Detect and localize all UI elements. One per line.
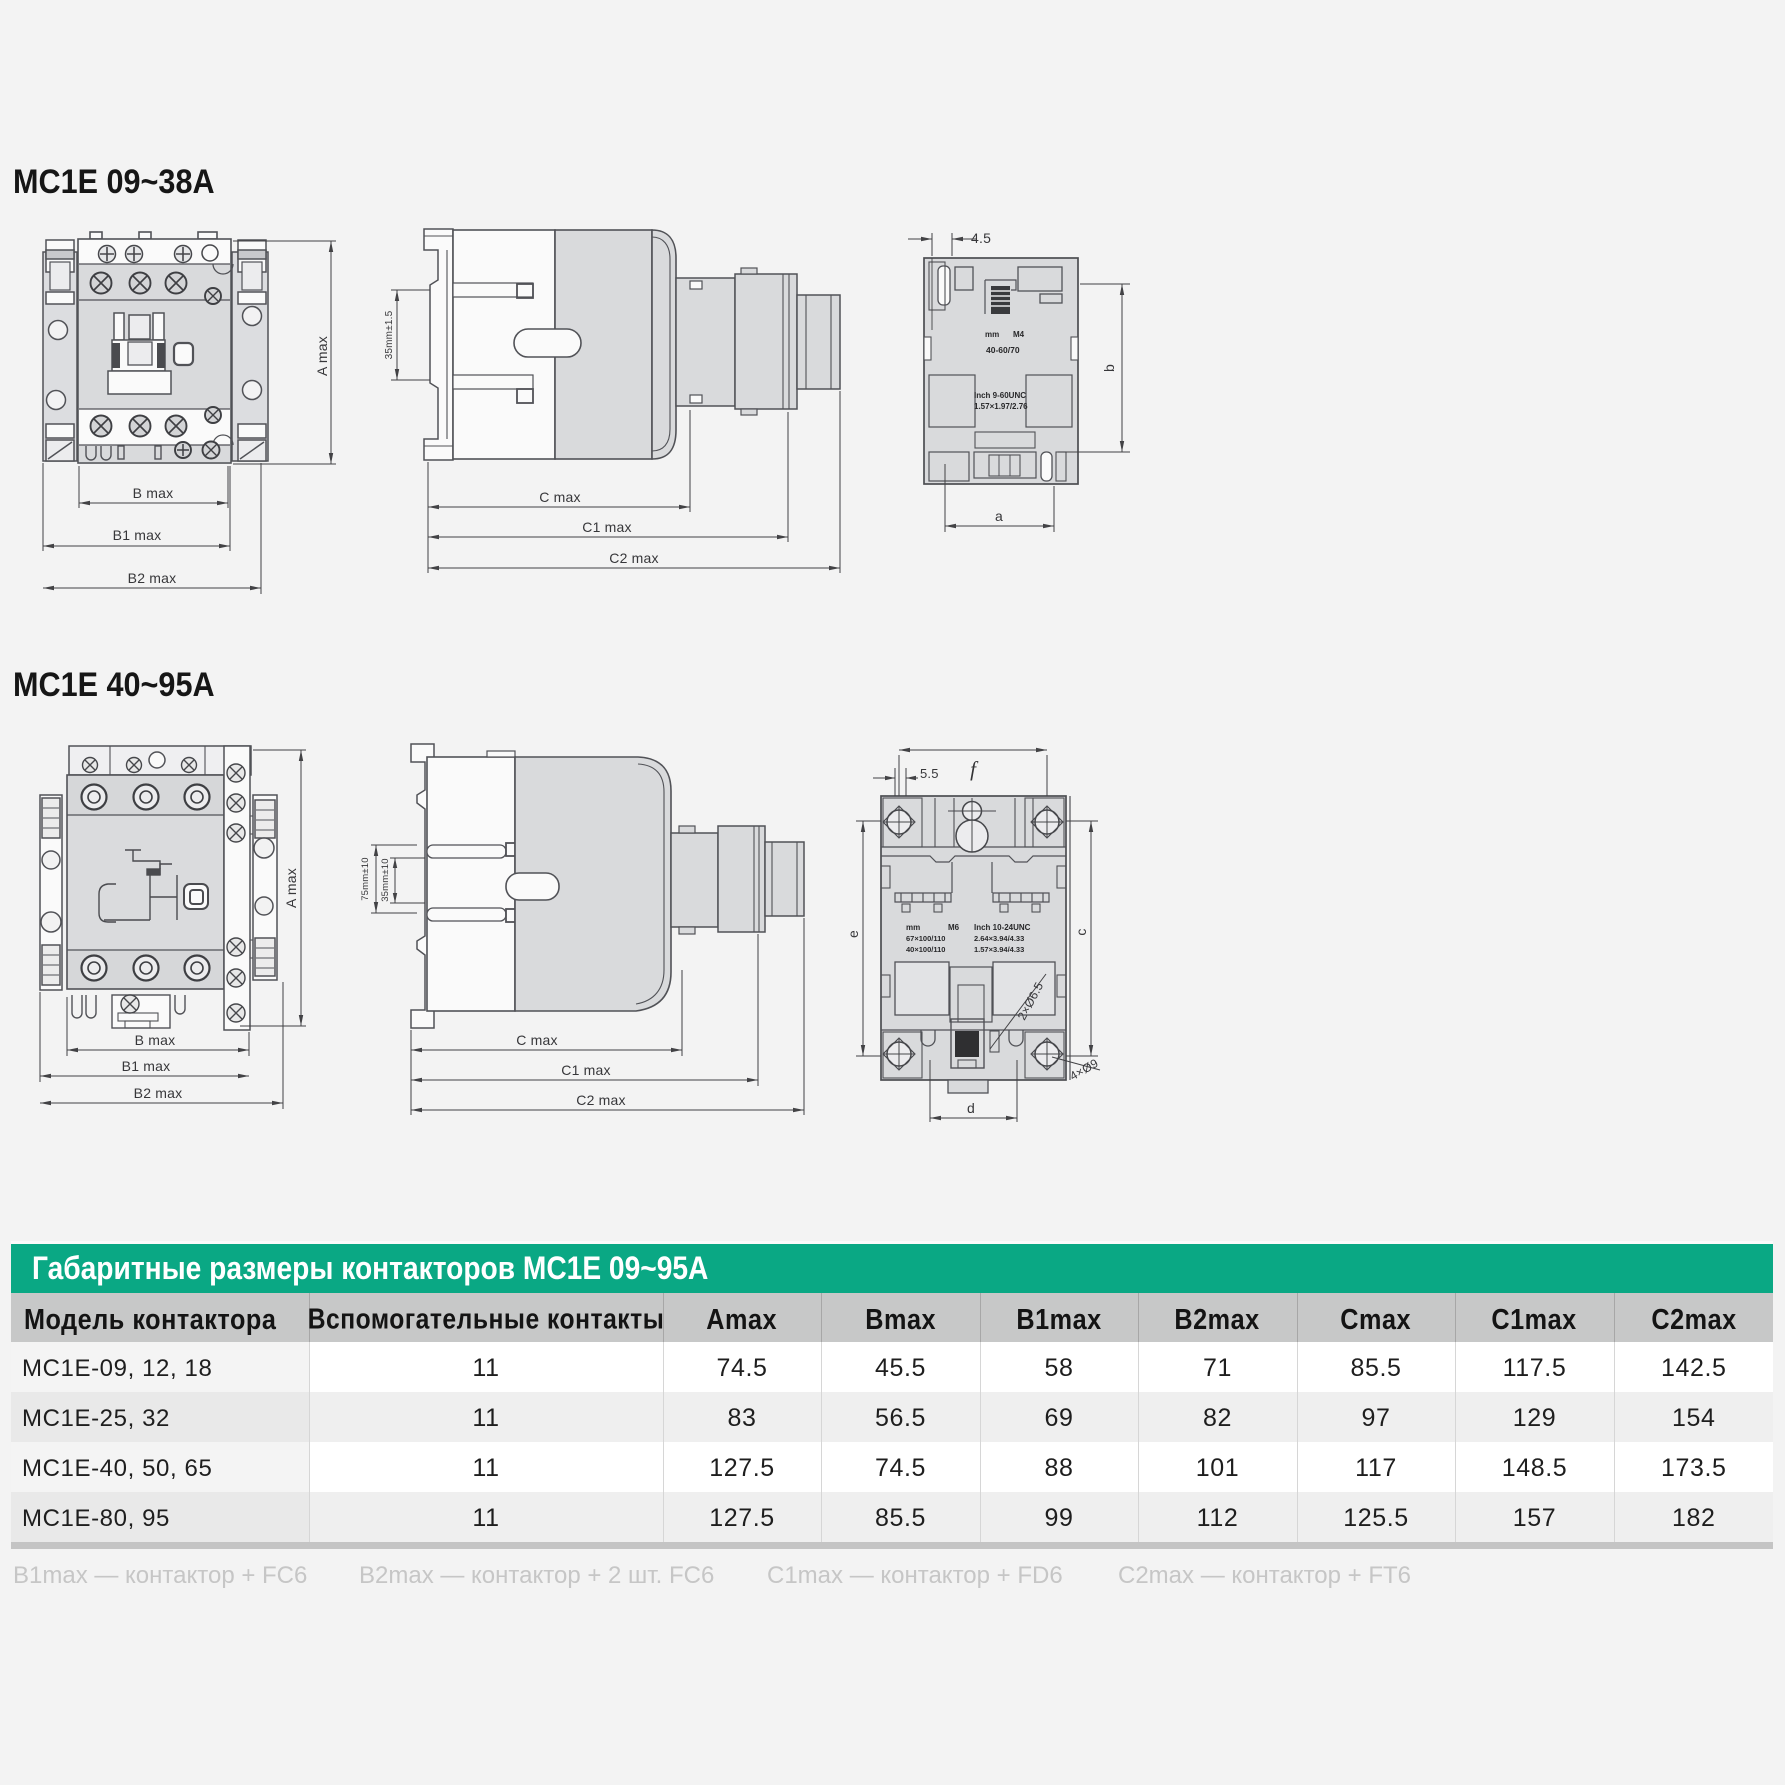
svg-text:1.57×3.94/4.33: 1.57×3.94/4.33	[974, 945, 1024, 954]
svg-text:mm: mm	[985, 330, 999, 339]
svg-text:40×100/110: 40×100/110	[906, 945, 945, 954]
svg-text:C2 max: C2 max	[576, 1092, 625, 1108]
svg-text:35mm±1.5: 35mm±1.5	[385, 310, 395, 359]
svg-text:mm: mm	[906, 923, 920, 932]
svg-text:d: d	[967, 1100, 975, 1116]
svg-text:C1 max: C1 max	[582, 519, 631, 535]
svg-text:75mm±10: 75mm±10	[360, 857, 371, 901]
svg-text:C max: C max	[516, 1032, 557, 1048]
svg-text:M6: M6	[948, 923, 960, 932]
svg-text:B2 max: B2 max	[128, 570, 177, 586]
svg-text:B max: B max	[135, 1032, 176, 1048]
svg-text:4×Ø9: 4×Ø9	[1067, 1056, 1101, 1083]
svg-text:e: e	[850, 930, 861, 938]
svg-text:C2 max: C2 max	[609, 550, 658, 566]
svg-text:A max: A max	[283, 868, 299, 908]
svg-text:4.5: 4.5	[971, 230, 991, 246]
svg-text:2.64×3.94/4.33: 2.64×3.94/4.33	[974, 934, 1024, 943]
svg-text:5.5: 5.5	[920, 766, 939, 781]
svg-text:C max: C max	[539, 489, 580, 505]
svg-text:c: c	[1073, 928, 1089, 935]
svg-text:A max: A max	[314, 336, 330, 376]
svg-text:67×100/110: 67×100/110	[906, 934, 945, 943]
svg-text:B1 max: B1 max	[113, 527, 162, 543]
svg-text:Inch 9-60UNC: Inch 9-60UNC	[974, 391, 1026, 400]
svg-text:1.57×1.97/2.76: 1.57×1.97/2.76	[974, 402, 1028, 411]
svg-text:a: a	[995, 508, 1003, 524]
svg-text:f: f	[970, 757, 979, 781]
svg-text:B2 max: B2 max	[134, 1085, 183, 1101]
svg-text:b: b	[1101, 364, 1117, 372]
svg-text:B max: B max	[133, 485, 174, 501]
svg-text:C1 max: C1 max	[561, 1062, 610, 1078]
svg-text:35mm±10: 35mm±10	[380, 858, 391, 902]
svg-text:Inch 10-24UNC: Inch 10-24UNC	[974, 923, 1031, 932]
svg-text:40-60/70: 40-60/70	[986, 345, 1020, 355]
svg-text:M4: M4	[1013, 330, 1025, 339]
svg-text:B1 max: B1 max	[122, 1058, 171, 1074]
